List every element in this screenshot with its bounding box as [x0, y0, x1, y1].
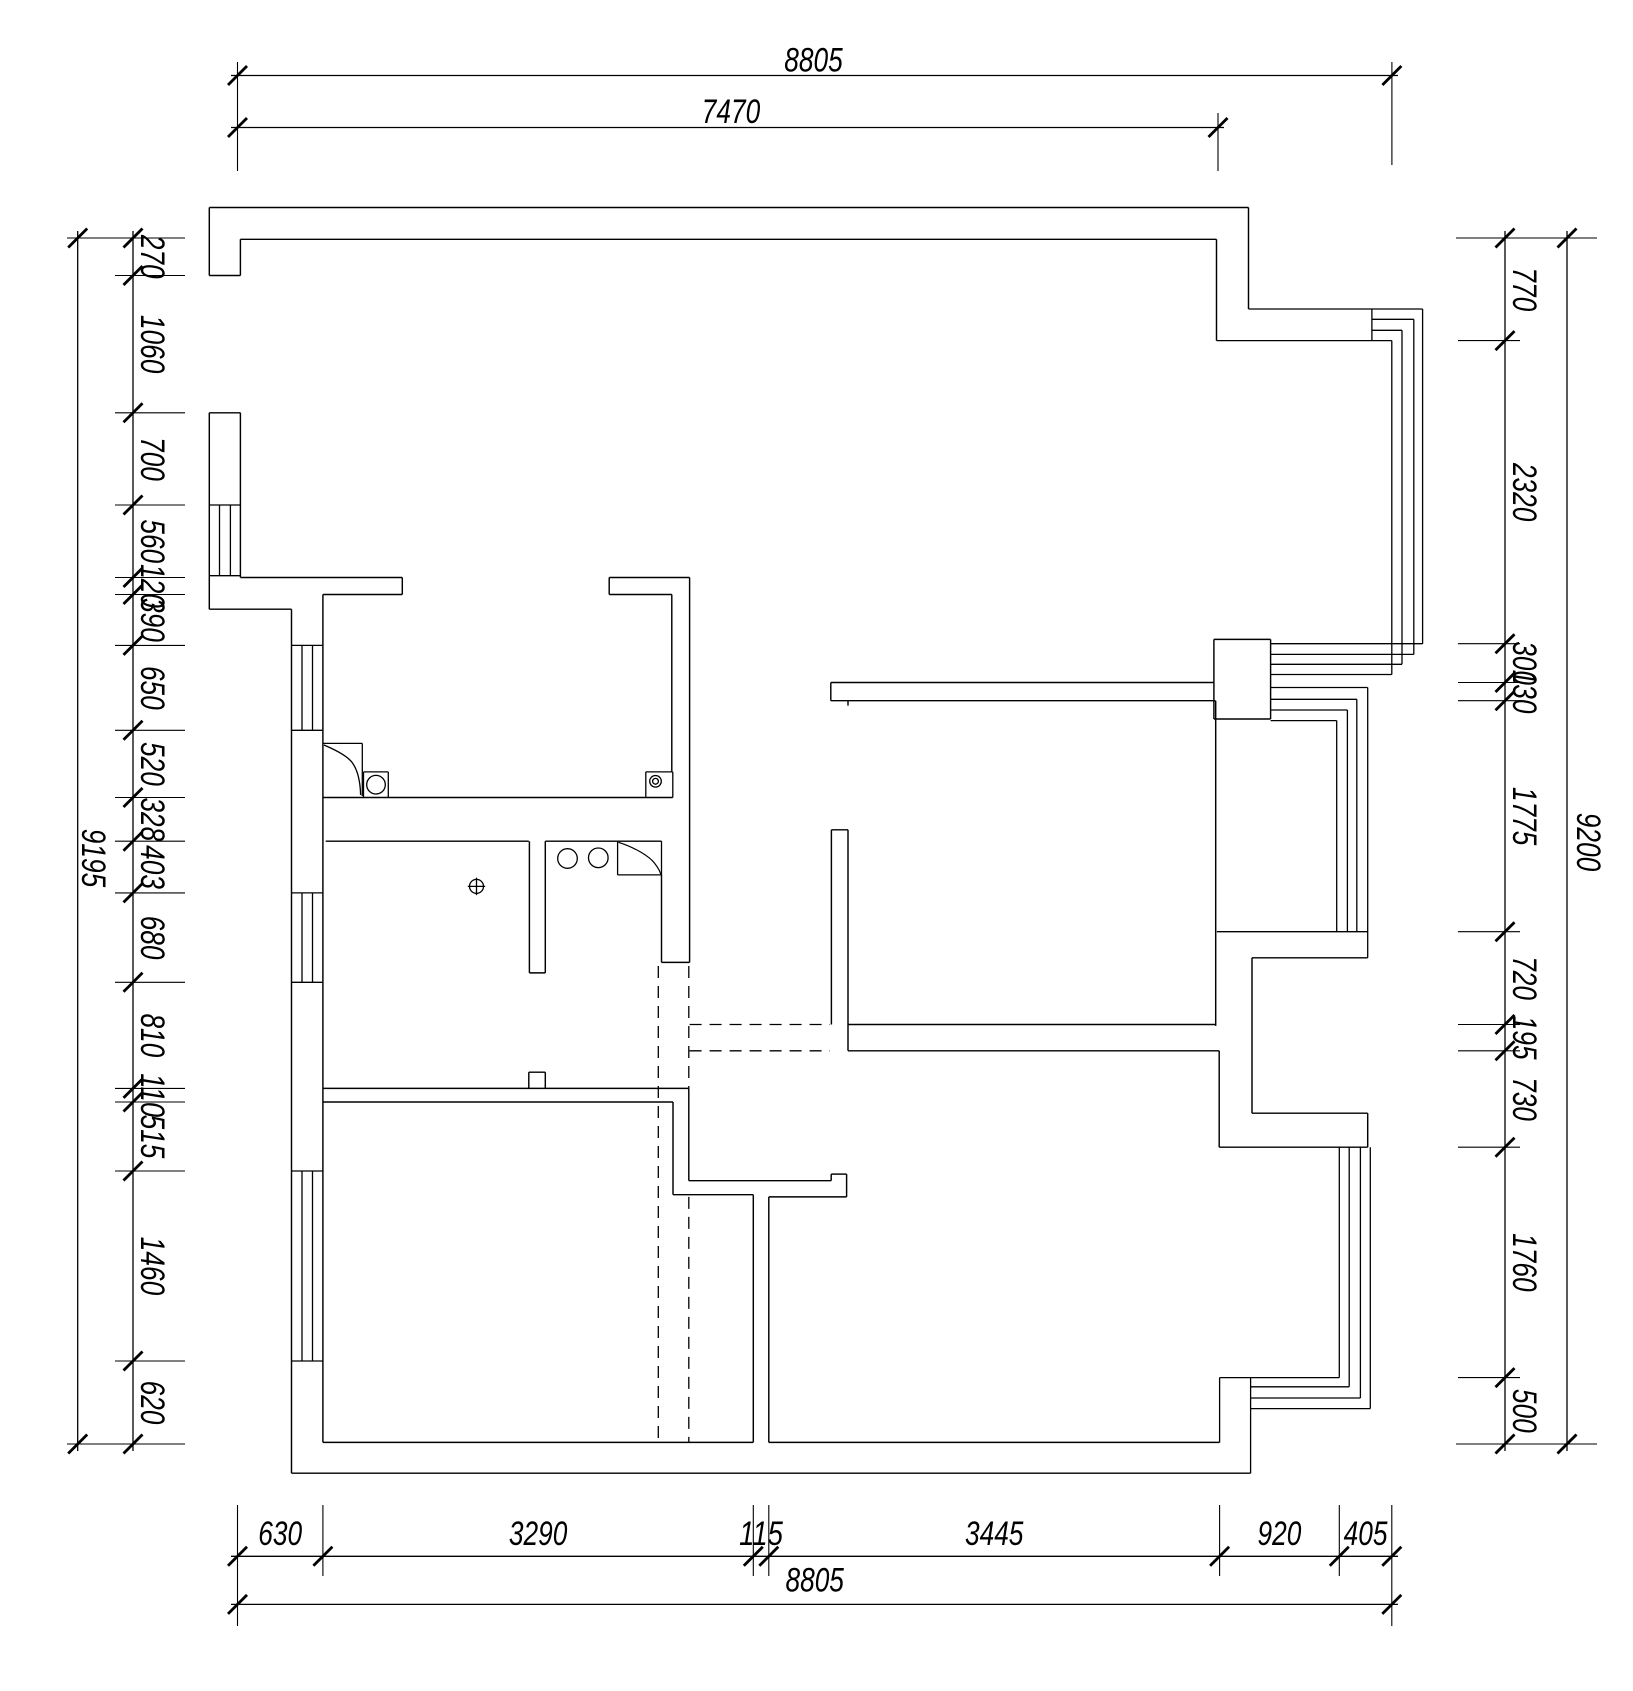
svg-text:810: 810 — [133, 1013, 171, 1057]
svg-text:8805: 8805 — [786, 1561, 844, 1599]
svg-text:403: 403 — [133, 845, 171, 889]
svg-text:3445: 3445 — [965, 1515, 1023, 1553]
svg-text:270: 270 — [133, 234, 171, 279]
svg-text:7470: 7470 — [702, 93, 760, 131]
svg-text:560: 560 — [133, 519, 171, 563]
svg-text:515: 515 — [133, 1115, 171, 1159]
svg-text:390: 390 — [133, 598, 171, 642]
svg-text:2320: 2320 — [1505, 462, 1543, 521]
svg-text:520: 520 — [133, 742, 171, 786]
svg-text:1775: 1775 — [1505, 787, 1543, 845]
svg-text:405: 405 — [1344, 1515, 1388, 1553]
svg-text:9200: 9200 — [1569, 813, 1607, 871]
svg-text:9195: 9195 — [74, 829, 112, 887]
svg-text:1460: 1460 — [133, 1237, 171, 1295]
svg-text:1060: 1060 — [133, 315, 171, 373]
svg-text:328: 328 — [133, 797, 171, 841]
svg-text:130: 130 — [1505, 670, 1543, 714]
svg-text:195: 195 — [1505, 1016, 1543, 1060]
svg-text:720: 720 — [1505, 956, 1543, 1000]
svg-text:3290: 3290 — [509, 1515, 567, 1553]
svg-text:650: 650 — [133, 666, 171, 710]
svg-text:630: 630 — [258, 1515, 302, 1553]
svg-text:1760: 1760 — [1505, 1233, 1543, 1291]
svg-text:700: 700 — [133, 437, 171, 481]
svg-text:770: 770 — [1505, 267, 1543, 311]
svg-text:620: 620 — [133, 1381, 171, 1425]
svg-text:500: 500 — [1505, 1389, 1543, 1433]
svg-text:110: 110 — [133, 1073, 171, 1117]
svg-text:730: 730 — [1505, 1077, 1543, 1121]
svg-text:680: 680 — [133, 916, 171, 960]
svg-text:920: 920 — [1258, 1515, 1302, 1553]
svg-text:8805: 8805 — [784, 42, 842, 80]
svg-text:115: 115 — [739, 1515, 783, 1553]
